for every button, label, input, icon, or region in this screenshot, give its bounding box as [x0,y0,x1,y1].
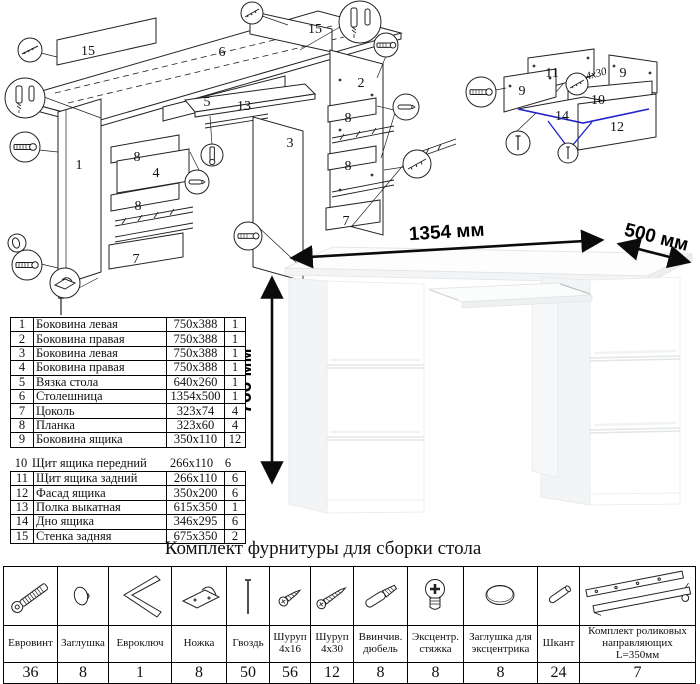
detail-label-12: 12 [610,120,624,135]
callout-foot-icon [50,268,80,315]
parts-table-lower: 11Щит ящика задний266x1106 12Фасад ящика… [10,471,246,544]
part-label-7a: 7 [133,252,140,267]
callout-euroscrew4-icon [234,222,262,250]
parts-table-upper: 1Боковина левая750x3881 2Боковина правая… [10,317,246,448]
screw-4x30-icon [312,569,352,623]
parts-table-row-10: 10 Щит ящика передний 266x110 6 [10,456,238,471]
hardware-label: Шкант [538,626,580,663]
desk-depth-dimension: 500 мм [622,220,690,256]
part-label-5: 5 [204,95,211,110]
assembly-instruction-sheet: { "colors": {"line": "#1a1a1a", "highlig… [0,0,700,677]
hardware-qty: 24 [538,662,580,683]
hardware-kit-title: Комплект фурнитуры для сборки стола [43,539,603,560]
hardware-icons-row [4,567,696,626]
detail-label-11: 11 [545,66,558,81]
callout-dowel-pin-icon [5,78,45,118]
hardware-label: Евровинт [4,626,58,663]
dowel-icon [539,569,579,623]
table-row: 11Щит ящика задний266x1106 [11,472,246,486]
hardware-label: Комплект роликовых направляющих L=350мм [580,626,696,663]
part-label-6: 6 [219,45,226,60]
table-row: 2Боковина правая750x3881 [11,332,246,346]
hardware-qty-row: 36 8 1 8 50 56 12 8 8 8 24 7 [4,662,696,683]
hardware-qty: 12 [311,662,354,683]
hardware-kit-table: Евровинт Заглушка Евроключ Ножка Гвоздь … [3,566,696,684]
table-row: 14Дно ящика346x2956 [11,515,246,529]
table-row: 8Планка323x604 [11,418,246,432]
dowel-screw-icon [356,569,406,623]
part-label-4: 4 [153,166,160,181]
hardware-qty: 56 [270,662,311,683]
detail-nail-icon [506,131,530,155]
part-label-13: 13 [237,99,251,114]
callout-screw2-icon [241,2,263,24]
callout-cap-icon [8,234,26,252]
cam-cap-icon [466,569,536,623]
detail-nail2-icon [558,143,578,163]
hardware-label: Заглушка [58,626,109,663]
table-row: 9Боковина ящика350x11012 [11,433,246,447]
table-row: 5Вязка стола640x2601 [11,375,246,389]
callout-screw3-icon [403,150,431,178]
hardware-label: Гвоздь [227,626,270,663]
roller-guides-icon [582,569,694,623]
part-label-7b: 7 [343,214,350,229]
table-row: 6Столешница1354x5001 [11,389,246,403]
callout-euroscrew-icon [10,132,40,162]
table-row: 3Боковина левая750x3881 [11,346,246,360]
detail-label-10: 10 [591,93,605,108]
detail-label-14: 14 [555,109,569,124]
detail-euroscrew-icon [466,77,496,107]
nail-icon [228,569,268,623]
callout-euroscrew3-icon [374,33,398,57]
hardware-qty: 1 [109,662,172,683]
part-label-3: 3 [287,136,294,151]
table-row: 7Цоколь323x744 [11,404,246,418]
cap-icon [59,569,107,623]
hardware-qty: 36 [4,662,58,683]
hardware-qty: 50 [227,662,270,683]
hardware-label: Заглушка для эксцентрика [464,626,538,663]
part-label-15b: 15 [308,22,322,37]
hardware-qty: 8 [172,662,227,683]
hardware-qty: 8 [354,662,408,683]
callout-dowel-pin2-icon [339,1,381,43]
callout-euroscrew2-icon [12,250,42,280]
part-label-2: 2 [358,76,365,91]
hardware-labels-row: Евровинт Заглушка Евроключ Ножка Гвоздь … [4,626,696,663]
table-row: 1Боковина левая750x3881 [11,318,246,332]
callout-pin2-icon [185,170,209,194]
callout-euroscrew5-icon [201,144,223,166]
hardware-label: Эксцентр. стяжка [408,626,464,663]
part-label-1: 1 [76,158,83,173]
part-label-8b: 8 [135,199,142,214]
hardware-qty: 7 [580,662,696,683]
hardware-label: Ножка [172,626,227,663]
hardware-label: Шуруп 4x16 [270,626,311,663]
detail-label-9a: 9 [519,84,526,99]
hexkey-icon [110,569,170,623]
detail-label-9b: 9 [620,66,627,81]
drawer-detail-diagram: 11 9 9 10 14 12 4x30 [466,49,657,163]
part-label-8d: 8 [345,159,352,174]
part-label-8c: 8 [345,111,352,126]
hardware-qty: 8 [464,662,538,683]
hardware-label: Евроключ [109,626,172,663]
callout-pin-icon [393,94,419,120]
desk-width-dimension: 1354 мм [408,220,485,246]
part-label-15a: 15 [81,44,95,59]
hardware-qty: 8 [58,662,109,683]
desk-render: 1354 мм 500 мм 766 мм [235,220,692,513]
table-row: 12Фасад ящика350x2006 [11,486,246,500]
hardware-qty: 8 [408,662,464,683]
table-row: 4Боковина правая750x3881 [11,361,246,375]
foot-icon [173,569,225,623]
hardware-label: Ввинчив. дюбель [354,626,408,663]
part-label-8a: 8 [134,150,141,165]
callout-screw-icon [18,38,42,62]
hardware-label: Шуруп 4x30 [311,626,354,663]
euroscrew-icon [5,569,57,623]
screw-4x16-icon [271,569,309,623]
cam-lock-icon [410,569,462,623]
table-row: 13Полка выкатная615x3501 [11,500,246,514]
